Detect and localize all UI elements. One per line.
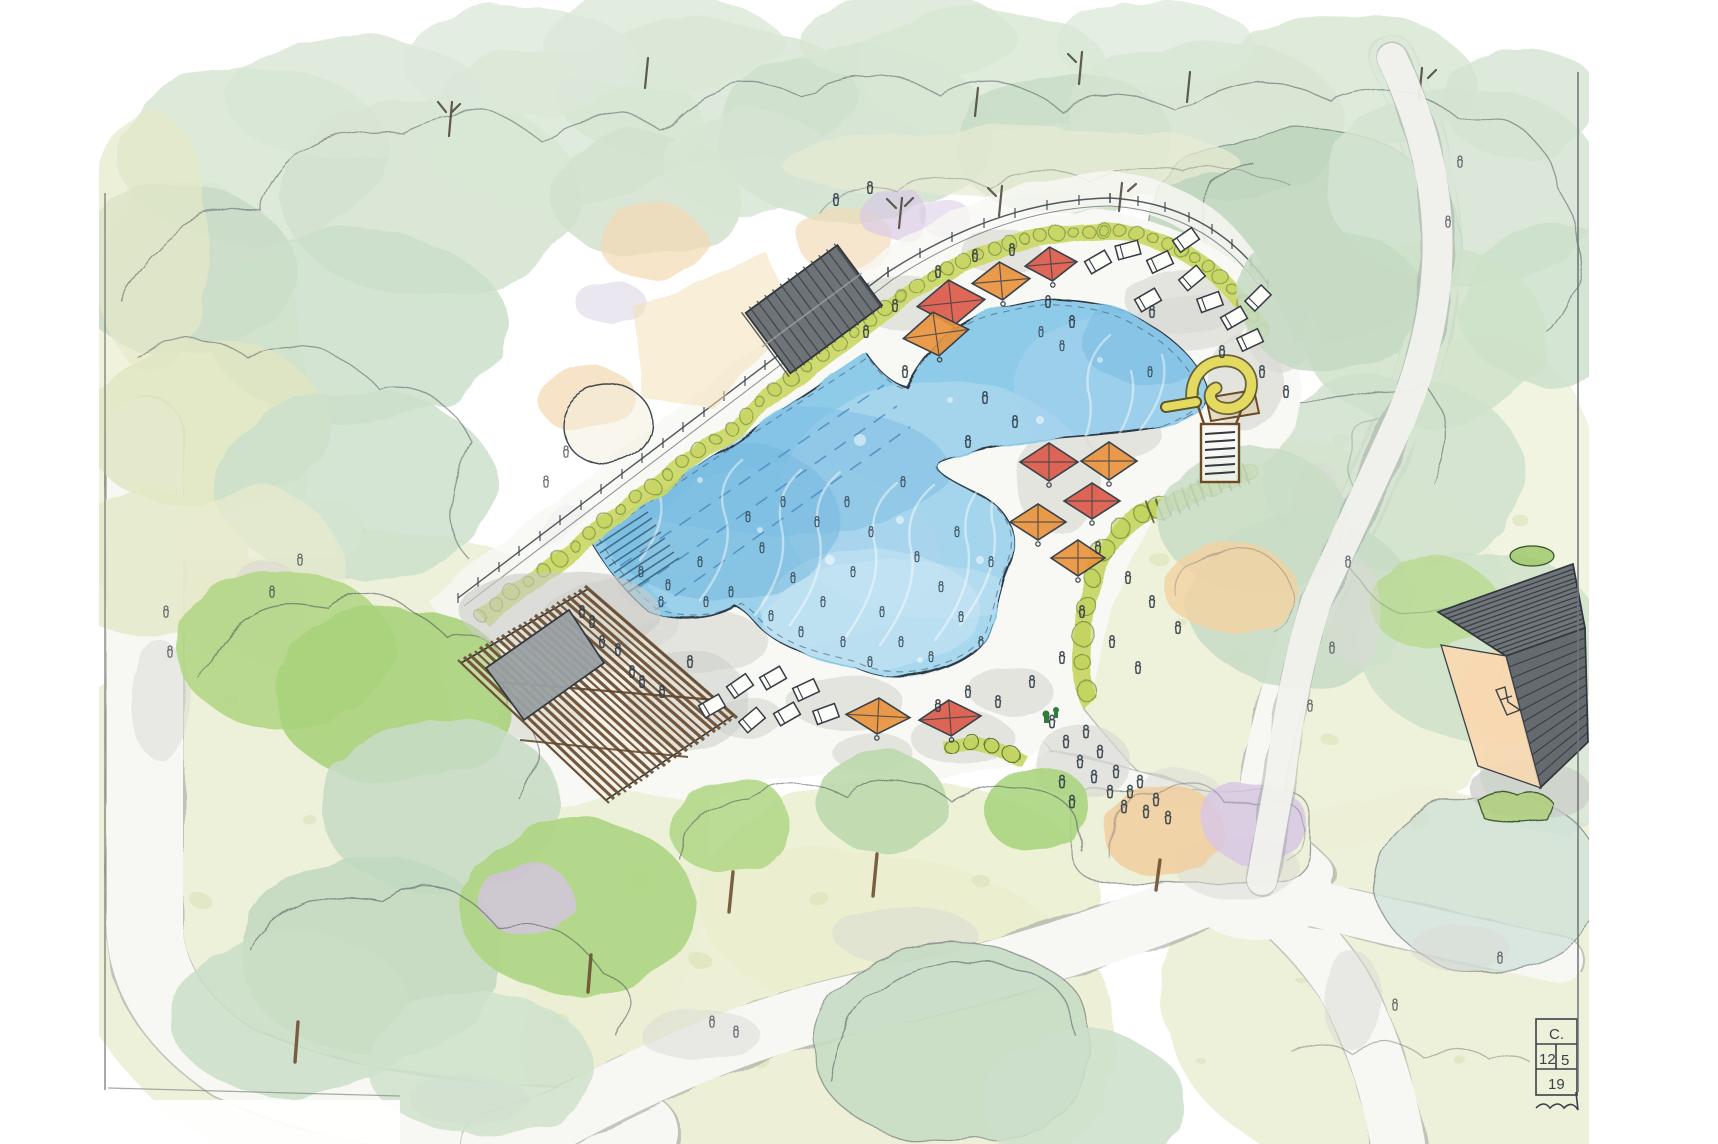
svg-text:12: 12	[1539, 1051, 1556, 1068]
svg-text:C.: C.	[1549, 1026, 1564, 1043]
svg-text:19: 19	[1548, 1076, 1565, 1093]
svg-text:5: 5	[1561, 1052, 1569, 1069]
